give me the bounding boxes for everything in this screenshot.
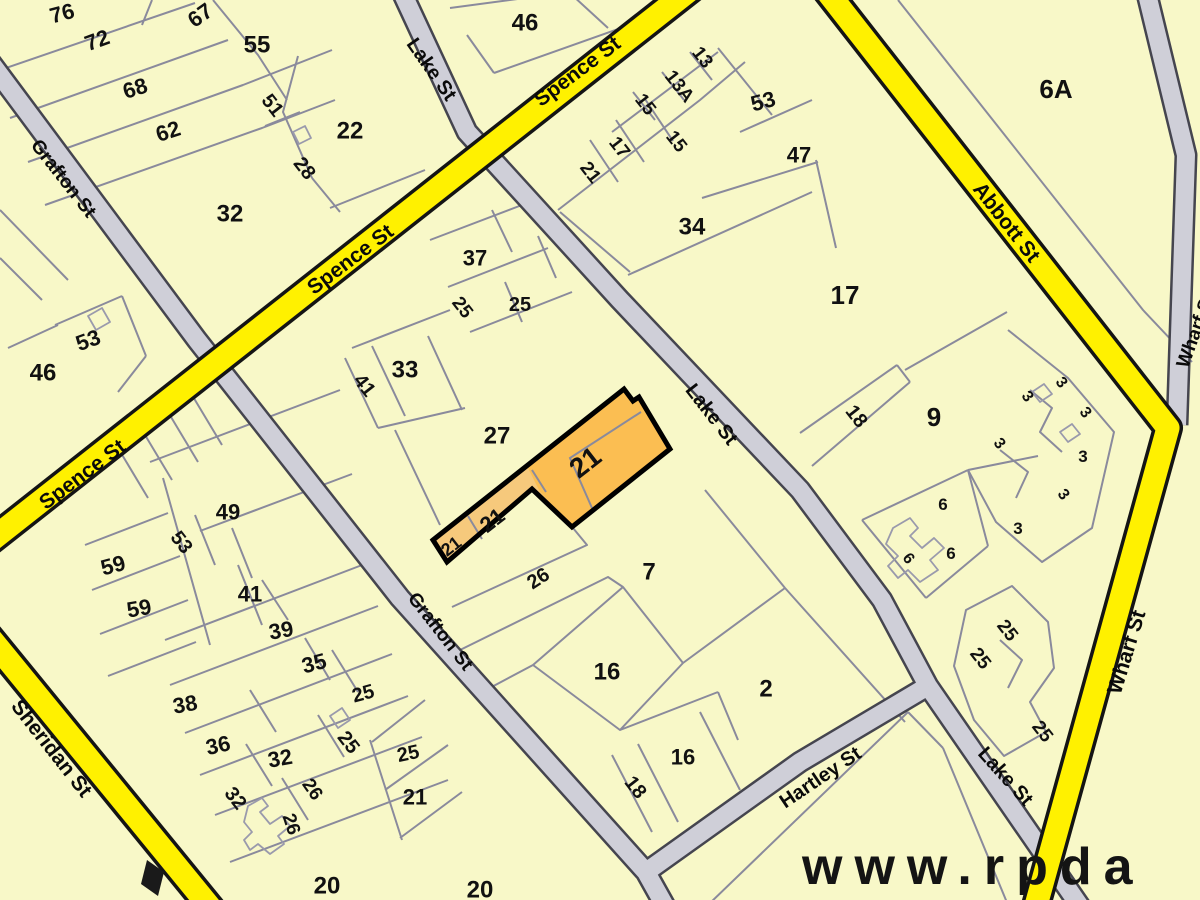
lot-label: 22 [337,117,364,144]
lot-label: 39 [267,616,295,645]
lot-label: 46 [30,359,57,386]
lot-label: 6 [946,544,955,563]
lot-label: 25 [509,294,531,316]
lot-label: 20 [314,872,341,899]
lot-label: 20 [467,876,494,900]
lot-label: 33 [392,356,419,383]
lot-label: 55 [244,31,271,58]
lot-label: 9 [927,402,941,432]
lot-label: 32 [266,744,294,773]
lot-label: 49 [216,500,240,525]
lot-label: 37 [463,246,487,271]
map-stage: 767268626755512822324653461313A151517215… [0,0,1200,900]
lot-label: 25 [395,741,421,767]
lot-label: 21 [403,785,427,810]
lot-label: 41 [238,582,262,607]
cadastral-map: 767268626755512822324653461313A151517215… [0,0,1200,900]
lot-label: 32 [217,200,244,227]
lot-label: 38 [171,690,199,719]
lot-label: 17 [831,280,860,310]
lot-label: 16 [671,745,695,770]
lot-label: 34 [679,213,706,240]
lot-label: 59 [125,594,153,623]
lot-label: 2 [759,675,772,702]
lot-label: 3 [1078,447,1087,466]
watermark: www.rpda [801,838,1145,896]
lot-label: 6A [1039,74,1072,104]
lot-label: 27 [484,422,511,449]
lot-label: 16 [594,658,621,685]
lot-label: 6 [938,495,947,514]
lot-label: 36 [203,730,232,760]
lot-label: 7 [642,558,655,585]
lot-label: 3 [1013,519,1022,538]
lot-label: 46 [512,9,539,36]
lot-label: 47 [787,143,811,168]
